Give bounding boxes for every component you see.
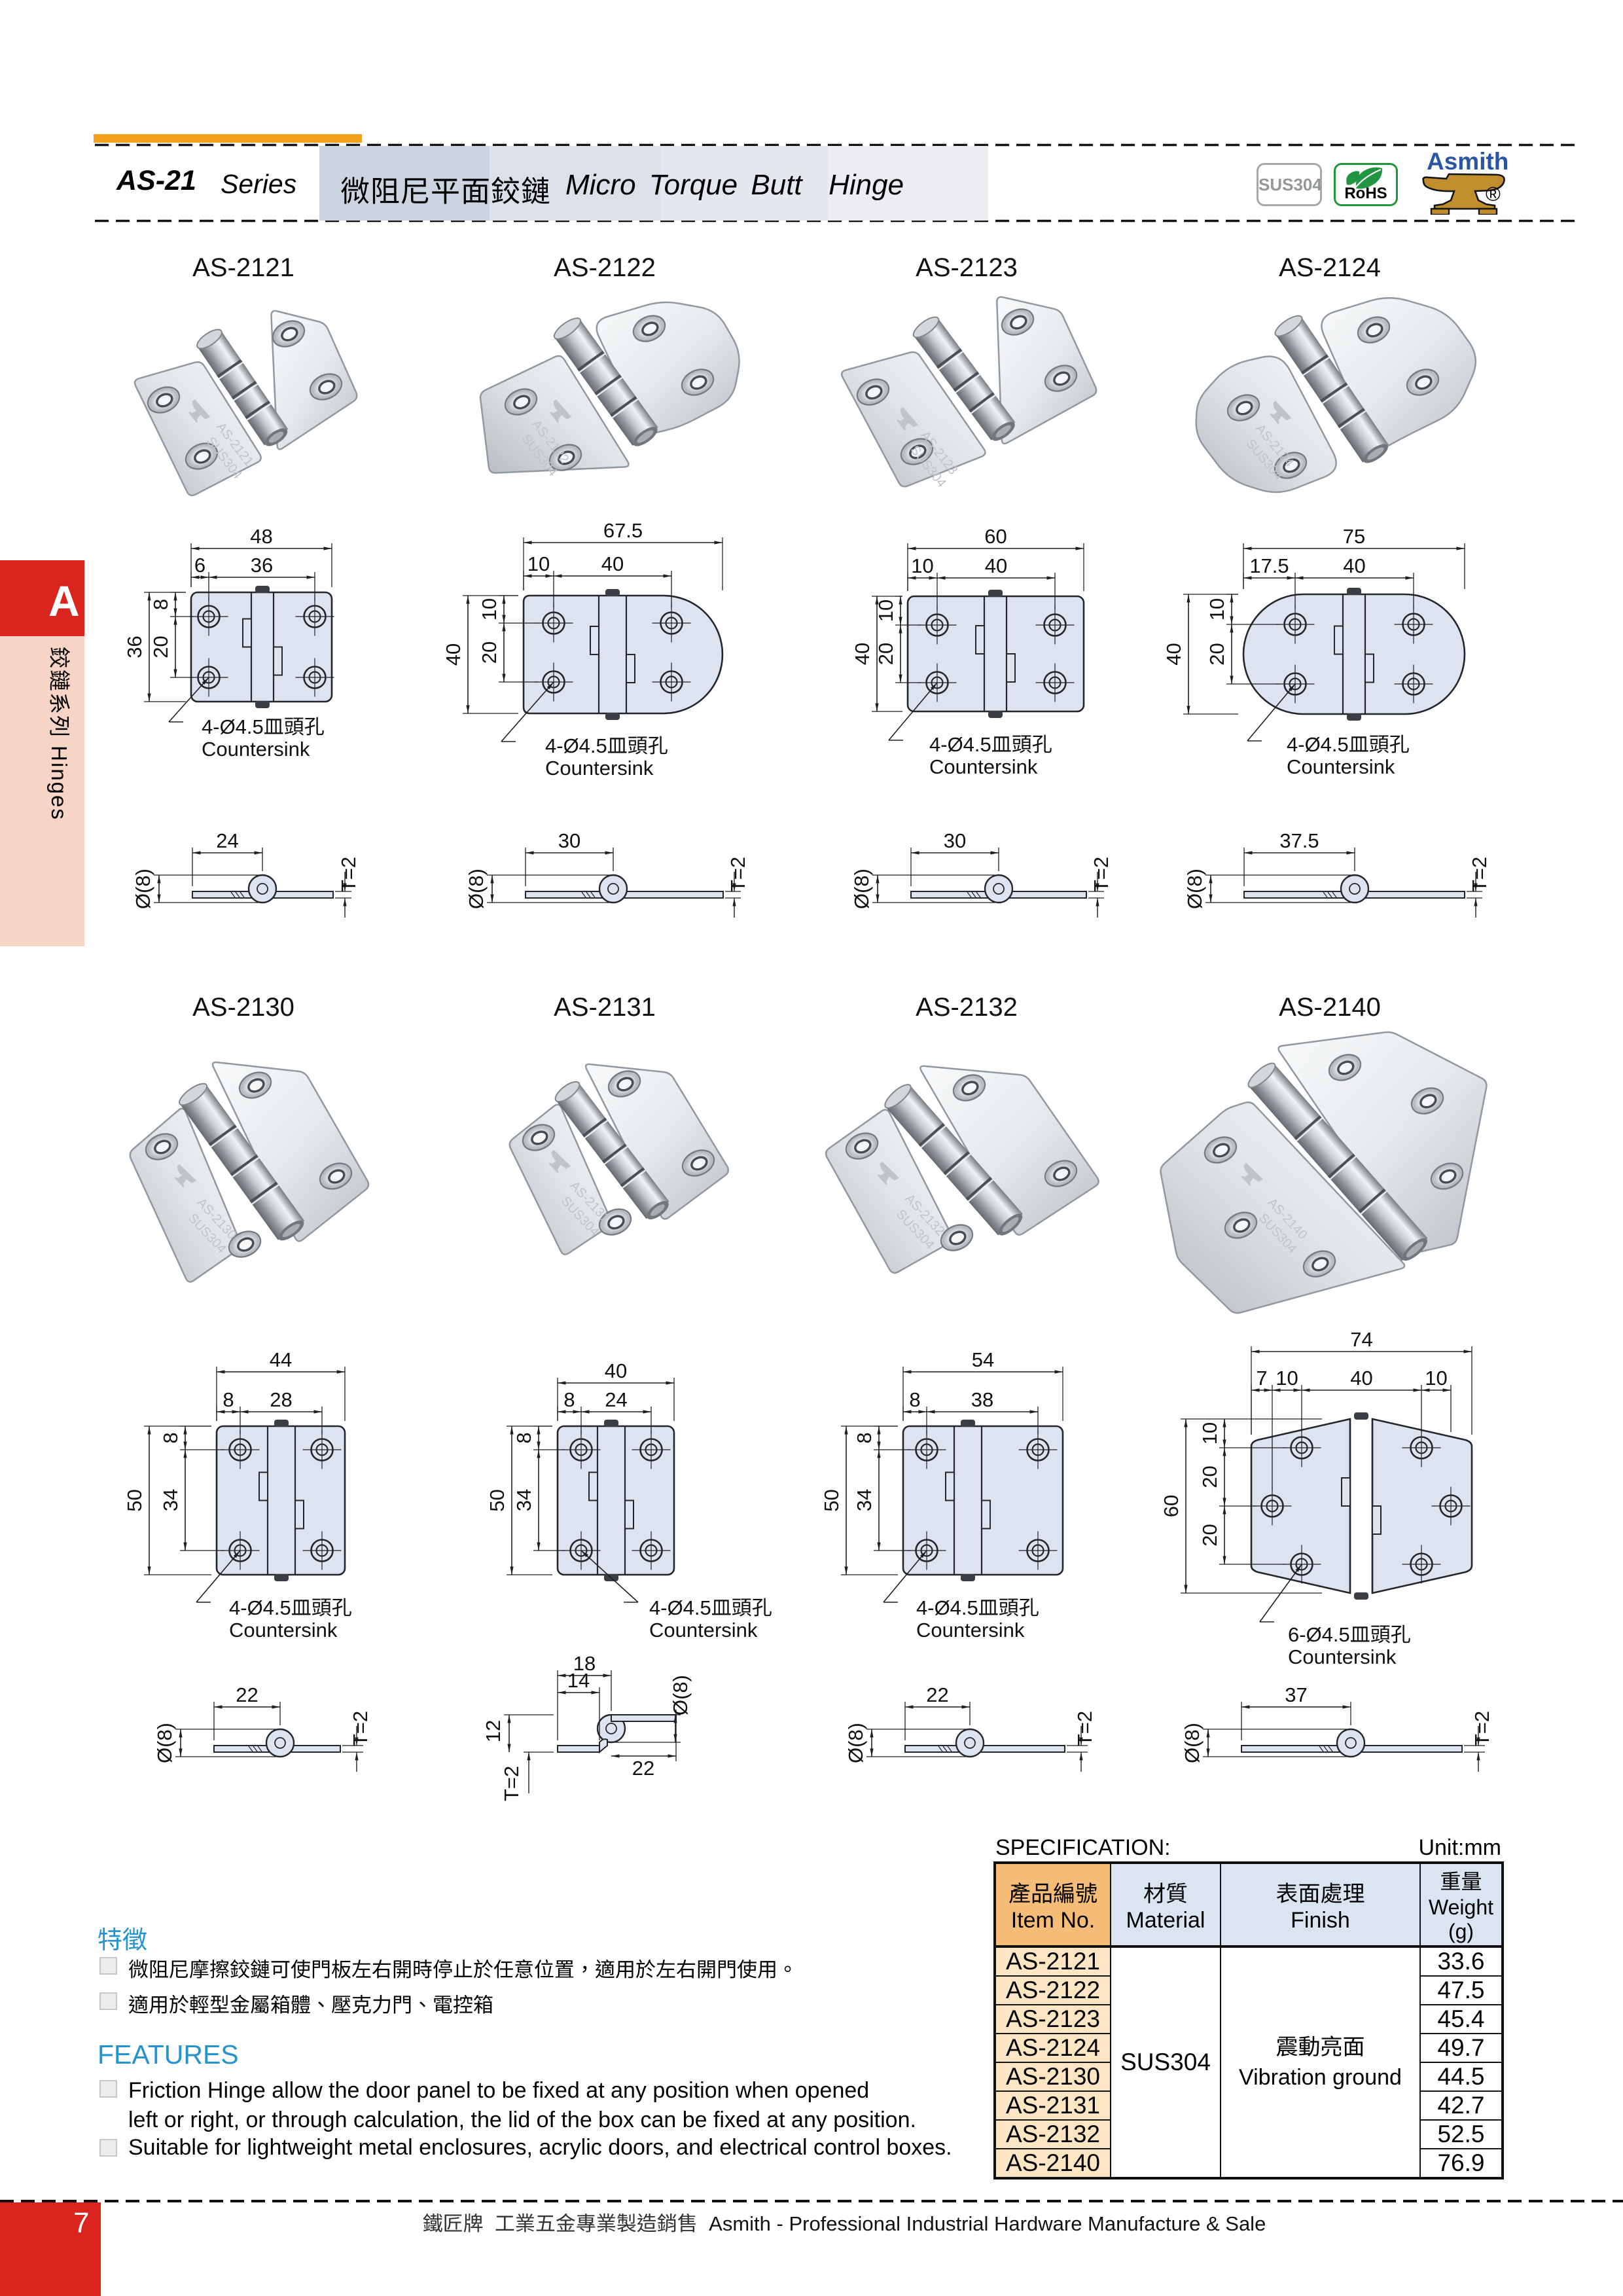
svg-text:Ø(8): Ø(8) [844,1723,867,1763]
svg-text:T=2: T=2 [337,857,360,892]
svg-text:4-Ø4.5皿頭孔: 4-Ø4.5皿頭孔 [229,1596,352,1619]
svg-text:24: 24 [216,829,238,852]
svg-text:4-Ø4.5皿頭孔: 4-Ø4.5皿頭孔 [202,715,325,738]
svg-text:8: 8 [563,1388,575,1411]
svg-text:AS-2131: AS-2131 [554,993,656,1022]
svg-text:AS-2132: AS-2132 [916,993,1018,1022]
svg-text:20: 20 [1198,1465,1221,1488]
svg-text:40: 40 [442,643,465,666]
svg-text:30: 30 [944,829,966,852]
svg-text:T=2: T=2 [1090,857,1113,892]
svg-text:28: 28 [270,1388,292,1411]
svg-text:Ø(8): Ø(8) [132,869,154,909]
svg-text:60: 60 [984,525,1007,548]
svg-text:50: 50 [486,1489,508,1511]
svg-text:20: 20 [1205,643,1228,665]
svg-text:38: 38 [971,1388,993,1411]
svg-text:40: 40 [985,554,1007,577]
svg-text:8: 8 [223,1388,234,1411]
svg-text:Ø(8): Ø(8) [465,869,488,909]
svg-text:54: 54 [972,1348,994,1371]
svg-text:Countersink: Countersink [545,757,654,780]
svg-text:50: 50 [820,1489,843,1511]
svg-text:30: 30 [558,829,580,852]
svg-text:48: 48 [250,525,272,548]
svg-text:4-Ø4.5皿頭孔: 4-Ø4.5皿頭孔 [916,1596,1039,1619]
svg-text:36: 36 [251,554,273,577]
svg-text:40: 40 [605,1359,627,1382]
svg-text:7: 7 [1256,1367,1267,1390]
svg-text:4-Ø4.5皿頭孔: 4-Ø4.5皿頭孔 [649,1596,772,1619]
svg-text:40: 40 [601,552,624,575]
svg-text:Ø(8): Ø(8) [1181,1723,1204,1763]
svg-text:Countersink: Countersink [916,1619,1025,1641]
svg-text:10: 10 [911,554,933,577]
svg-text:10: 10 [527,552,550,575]
svg-text:10: 10 [1205,598,1228,620]
svg-text:22: 22 [632,1757,654,1780]
svg-text:Countersink: Countersink [202,738,310,761]
svg-text:Ø(8): Ø(8) [850,869,873,909]
svg-text:17.5: 17.5 [1249,554,1289,577]
svg-text:8: 8 [909,1388,920,1411]
svg-text:34: 34 [853,1489,876,1511]
svg-text:Countersink: Countersink [229,1619,338,1641]
svg-text:14: 14 [567,1669,590,1692]
svg-text:37: 37 [1285,1683,1307,1706]
svg-text:4-Ø4.5皿頭孔: 4-Ø4.5皿頭孔 [1287,733,1410,756]
svg-text:60: 60 [1160,1495,1183,1517]
svg-text:24: 24 [605,1388,627,1411]
svg-text:10: 10 [478,598,501,620]
svg-text:T=2: T=2 [726,857,749,892]
svg-text:T=2: T=2 [500,1766,523,1801]
svg-text:10: 10 [874,600,897,622]
svg-text:AS-2123: AS-2123 [916,253,1018,282]
svg-text:40: 40 [1162,643,1185,665]
svg-text:8: 8 [853,1432,876,1443]
svg-text:40: 40 [1343,554,1365,577]
svg-text:20: 20 [478,641,501,664]
svg-text:8: 8 [149,599,172,610]
svg-text:Countersink: Countersink [1288,1645,1397,1668]
svg-text:8: 8 [159,1432,182,1443]
svg-text:Countersink: Countersink [1287,755,1395,778]
svg-text:36: 36 [123,636,146,658]
svg-text:20: 20 [874,643,897,665]
svg-text:44: 44 [270,1348,292,1371]
svg-text:75: 75 [1343,525,1365,548]
svg-text:Ø(8): Ø(8) [669,1675,692,1715]
svg-text:T=2: T=2 [1073,1711,1096,1746]
svg-text:40: 40 [851,643,874,665]
svg-text:Ø(8): Ø(8) [1183,869,1206,909]
svg-text:AS-2130: AS-2130 [192,993,294,1022]
svg-text:22: 22 [236,1683,258,1706]
svg-text:AS-2121: AS-2121 [192,253,294,282]
svg-text:Countersink: Countersink [929,755,1038,778]
svg-text:34: 34 [512,1489,535,1511]
svg-text:4-Ø4.5皿頭孔: 4-Ø4.5皿頭孔 [545,734,668,757]
svg-text:67.5: 67.5 [603,519,643,542]
svg-text:37.5: 37.5 [1279,829,1319,852]
svg-text:AS-2124: AS-2124 [1279,253,1381,282]
svg-text:T=2: T=2 [1471,1711,1493,1746]
svg-text:6-Ø4.5皿頭孔: 6-Ø4.5皿頭孔 [1288,1623,1411,1646]
svg-text:10: 10 [1275,1367,1298,1390]
svg-text:22: 22 [926,1683,948,1706]
svg-text:34: 34 [159,1489,182,1511]
svg-text:40: 40 [1350,1367,1372,1390]
svg-text:10: 10 [1425,1367,1447,1390]
svg-text:74: 74 [1350,1328,1372,1351]
svg-text:Ø(8): Ø(8) [153,1723,176,1763]
svg-text:AS-2140: AS-2140 [1279,993,1381,1022]
svg-text:50: 50 [123,1489,146,1511]
svg-text:20: 20 [149,636,172,658]
svg-text:12: 12 [482,1720,505,1742]
svg-text:4-Ø4.5皿頭孔: 4-Ø4.5皿頭孔 [929,733,1052,756]
svg-text:T=2: T=2 [1468,857,1491,892]
svg-text:Countersink: Countersink [649,1619,758,1641]
svg-text:AS-2122: AS-2122 [554,253,656,282]
svg-text:T=2: T=2 [349,1711,372,1746]
svg-text:20: 20 [1198,1524,1221,1546]
svg-text:8: 8 [512,1432,535,1443]
svg-text:6: 6 [194,554,205,577]
svg-text:10: 10 [1198,1422,1221,1444]
